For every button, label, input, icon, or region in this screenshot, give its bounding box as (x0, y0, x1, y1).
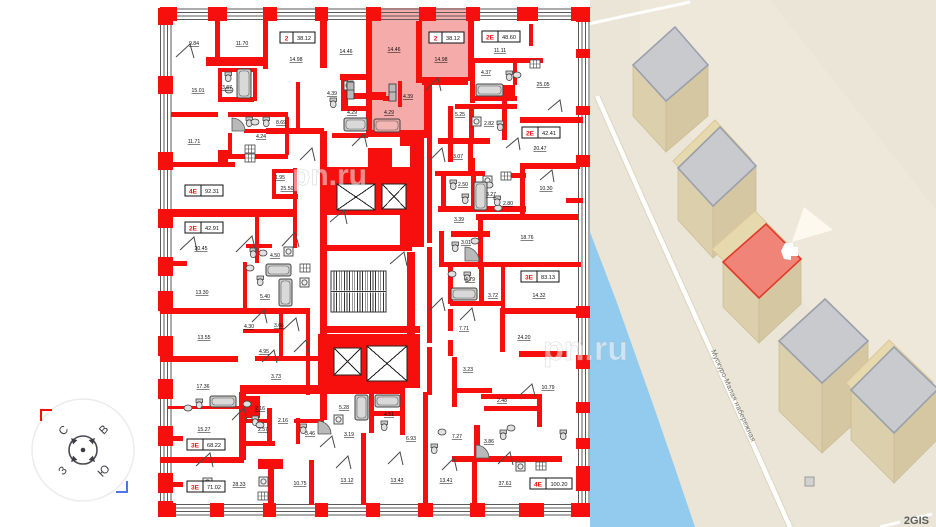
svg-text:3Е: 3Е (191, 443, 200, 450)
svg-text:3.39: 3.39 (454, 217, 464, 223)
svg-text:4.51: 4.51 (384, 412, 394, 418)
svg-text:11.70: 11.70 (236, 41, 249, 47)
svg-text:13.12: 13.12 (341, 478, 354, 484)
svg-text:42.91: 42.91 (205, 226, 219, 232)
svg-text:1.95: 1.95 (275, 175, 285, 181)
svg-text:10.75: 10.75 (294, 481, 307, 487)
svg-text:10.79: 10.79 (542, 385, 555, 391)
svg-text:З: З (57, 464, 70, 477)
svg-text:4.50: 4.50 (270, 253, 280, 259)
svg-text:8.69: 8.69 (276, 120, 286, 126)
svg-text:92.31: 92.31 (205, 189, 219, 195)
svg-text:37.61: 37.61 (499, 481, 512, 487)
svg-text:13.43: 13.43 (391, 478, 404, 484)
svg-text:3.23: 3.23 (463, 367, 473, 373)
svg-text:4Е: 4Е (189, 189, 198, 196)
svg-text:3.19: 3.19 (344, 432, 354, 438)
svg-text:14.98: 14.98 (290, 57, 303, 63)
svg-text:100.20: 100.20 (550, 482, 567, 488)
svg-text:48.60: 48.60 (502, 35, 516, 41)
svg-text:9.84: 9.84 (189, 41, 199, 47)
svg-text:20.47: 20.47 (534, 146, 547, 152)
svg-text:13.30: 13.30 (196, 290, 209, 296)
svg-text:3.07: 3.07 (453, 154, 463, 160)
svg-text:3Е: 3Е (191, 485, 200, 492)
svg-text:2.16: 2.16 (255, 406, 265, 412)
svg-text:38.12: 38.12 (297, 36, 311, 42)
svg-text:2: 2 (285, 36, 289, 43)
svg-text:6.93: 6.93 (406, 436, 416, 442)
svg-text:2.80: 2.80 (503, 201, 513, 207)
svg-text:17.36: 17.36 (197, 384, 210, 390)
svg-text:2Е: 2Е (189, 226, 198, 233)
svg-text:2GIS: 2GIS (904, 515, 929, 527)
svg-text:Ю: Ю (96, 463, 113, 480)
svg-text:4.39: 4.39 (403, 94, 413, 100)
svg-text:4.79: 4.79 (465, 277, 475, 283)
svg-text:2.50: 2.50 (458, 182, 468, 188)
svg-text:2.57: 2.57 (258, 427, 268, 433)
svg-text:83.13: 83.13 (541, 275, 555, 281)
svg-text:68.22: 68.22 (207, 443, 221, 449)
svg-text:3.73: 3.73 (271, 374, 281, 380)
svg-text:2.82: 2.82 (484, 121, 494, 127)
svg-text:3.67: 3.67 (222, 85, 232, 91)
svg-text:pn.ru: pn.ru (292, 159, 367, 192)
svg-text:25.05: 25.05 (537, 82, 550, 88)
svg-text:13.55: 13.55 (198, 335, 211, 341)
svg-text:4.95: 4.95 (259, 349, 269, 355)
svg-text:4.29: 4.29 (384, 110, 394, 116)
svg-text:3.86: 3.86 (484, 439, 494, 445)
svg-text:4.29: 4.29 (347, 110, 357, 116)
svg-text:20.45: 20.45 (195, 246, 208, 252)
svg-text:3.27: 3.27 (486, 192, 496, 198)
svg-text:4.24: 4.24 (256, 134, 266, 140)
svg-text:11.71: 11.71 (188, 139, 201, 145)
svg-text:3.46: 3.46 (305, 431, 315, 437)
svg-text:2.16: 2.16 (278, 418, 288, 424)
svg-text:18.76: 18.76 (521, 235, 534, 241)
svg-text:3.66: 3.66 (274, 323, 284, 329)
svg-text:13.41: 13.41 (440, 478, 453, 484)
svg-text:3Е: 3Е (525, 275, 534, 282)
svg-text:4.39: 4.39 (327, 91, 337, 97)
svg-text:14.46: 14.46 (340, 49, 353, 55)
svg-text:14.32: 14.32 (533, 293, 546, 299)
svg-text:71.02: 71.02 (207, 485, 221, 491)
svg-text:14.46: 14.46 (388, 47, 401, 53)
svg-text:38.12: 38.12 (446, 36, 460, 42)
svg-text:3.01: 3.01 (461, 240, 471, 246)
svg-text:2Е: 2Е (526, 131, 535, 138)
svg-text:В: В (97, 423, 111, 437)
svg-text:5.28: 5.28 (339, 405, 349, 411)
svg-text:2.48: 2.48 (497, 398, 507, 404)
svg-text:4.37: 4.37 (481, 70, 491, 76)
svg-text:11.11: 11.11 (494, 48, 506, 54)
svg-text:5.40: 5.40 (260, 294, 270, 300)
svg-text:pn.ru: pn.ru (543, 330, 628, 368)
svg-text:7.71: 7.71 (459, 326, 469, 332)
svg-text:3.72: 3.72 (488, 293, 498, 299)
svg-text:7.27: 7.27 (452, 434, 462, 440)
svg-text:42.41: 42.41 (542, 131, 556, 137)
svg-text:4.30: 4.30 (244, 324, 254, 330)
svg-text:4Е: 4Е (534, 482, 543, 489)
svg-text:15.01: 15.01 (192, 88, 205, 94)
svg-text:10.30: 10.30 (540, 186, 553, 192)
svg-text:2: 2 (434, 36, 438, 43)
svg-text:24.20: 24.20 (518, 335, 531, 341)
svg-text:С: С (57, 424, 71, 438)
svg-text:14.98: 14.98 (435, 57, 448, 63)
svg-text:2Е: 2Е (486, 35, 495, 42)
svg-text:15.27: 15.27 (198, 427, 211, 433)
svg-text:28.33: 28.33 (233, 482, 246, 488)
svg-text:5.25: 5.25 (455, 112, 465, 118)
